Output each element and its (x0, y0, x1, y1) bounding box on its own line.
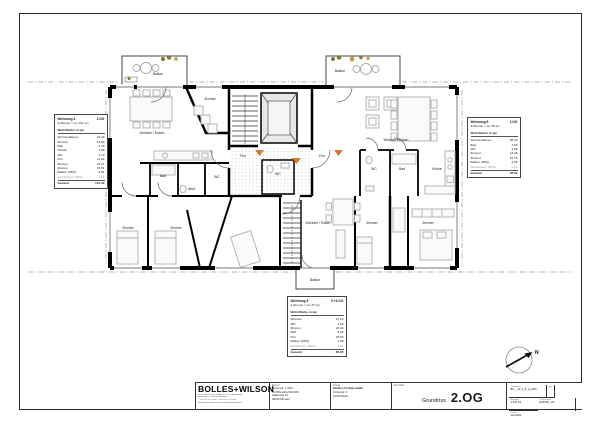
north-label: N (535, 350, 539, 356)
room-label: Zimmer (204, 97, 216, 101)
architect-address-line: info@bolles-wilson.com www.bolles-wilson… (198, 402, 267, 405)
room-label: Balkon (153, 72, 163, 76)
elevator-car (268, 101, 290, 135)
architect-logo: BOLLES+WILSON (198, 385, 267, 394)
room-label: Bad (399, 167, 405, 171)
unit-subtitle: 3-Zimmer ≈ ca. 101 qm (58, 121, 105, 125)
client-line: 48155 Münster (272, 398, 328, 402)
room-label: WC (214, 175, 220, 179)
plan-content-block: Planinhalt Grundriss 2.OG (392, 383, 507, 409)
room-label: Wohnen / Essen (384, 138, 409, 142)
room-label: Balkon (335, 69, 345, 73)
unit-subtitle: 3-Zimmer ≈ ca. 95 qm (471, 124, 518, 128)
unit-area-header: Wohnfläche in qm (58, 128, 105, 134)
unit-subtitle: 2-Zimmer ≈ ca. 87 qm (291, 303, 344, 307)
room-label: Abst. (188, 187, 196, 191)
room-label: Wohnen / Essen (306, 221, 331, 225)
project-line: 10783 Berlin (333, 395, 389, 399)
north-arrow: N (506, 347, 539, 373)
client-block: Bauherr Frobenstr. 1 GbR c/o BOLLES+WILS… (270, 383, 331, 409)
project-block: Projekt Studios Frobenstraße Frobenstr. … (331, 383, 392, 409)
unit-total-row: Gesamt86.85 (291, 349, 344, 355)
unit-area-header: Wohnfläche in qm (471, 131, 518, 137)
room-label: Zimmer (366, 221, 378, 225)
room-label: Flur (240, 154, 247, 158)
internal-stair-w5 (283, 200, 301, 268)
meta-filename: Dateiname BF_-_W_0_5_A_ARC (509, 385, 547, 398)
stair-core (232, 93, 297, 144)
meta-plan-number: Plannummer E02/021_A3 (538, 398, 576, 411)
unit-info-box-wohnung-5: Wohnung 52.+3.OG2-Zimmer ≈ ca. 87 qmWohn… (287, 296, 347, 357)
plan-content-header: Planinhalt (394, 385, 504, 388)
architect-block: BOLLES+WILSON BOLLES+WILSON GmbH & Co. K… (196, 383, 270, 409)
unit-info-box-wohnung-4: Wohnung 42.OG3-Zimmer ≈ ca. 101 qmWohnfl… (54, 114, 108, 189)
room-label: Bad (160, 174, 166, 178)
room-label: Zimmer (422, 221, 434, 225)
plan-floor-value: 2.OG (451, 390, 483, 405)
meta-date: Datum Juli 2020 (509, 411, 546, 424)
floor-plan-drawing: BalkonBalkonBalkonWohnen / EssenZimmerBa… (0, 0, 600, 424)
meta-drawn-by: gez. (547, 385, 555, 398)
room-label: WC (275, 172, 281, 176)
room-label: Wohnen / Essen (140, 131, 165, 135)
unit-area-header: Wohnfläche in qm (291, 310, 344, 316)
title-block: BOLLES+WILSON BOLLES+WILSON GmbH & Co. K… (195, 382, 582, 409)
room-label: Zimmer (122, 226, 134, 230)
unit-total-row: Gesamt101.40 (58, 180, 105, 186)
meta-grid: Dateiname BF_-_W_0_5_A_ARC gez. Maßstab … (507, 383, 582, 409)
plan-type-label: Grundriss (422, 398, 446, 404)
unit-area-row: Abstellraum (50%)1.24 (58, 175, 105, 179)
room-label: Zimmer (170, 226, 182, 230)
unit-area-row: Abstellraum (50%)1.24 (291, 344, 344, 348)
room-label: WC (371, 167, 377, 171)
unit-total-row: Gesamt95.82 (471, 170, 518, 176)
room-label: Küche (432, 167, 442, 171)
drawing-sheet: BalkonBalkonBalkonWohnen / EssenZimmerBa… (0, 0, 600, 424)
meta-scale: Maßstab 1:100 A3 (509, 398, 538, 411)
unit-info-box-wohnung-6: Wohnung 62.OG3-Zimmer ≈ ca. 95 qmWohnflä… (467, 117, 521, 178)
room-label: Balkon (310, 278, 320, 282)
unit-area-row: Abstellraum (50%)1.24 (471, 165, 518, 169)
room-label: Flur (319, 154, 326, 158)
balcony-furniture-right (353, 64, 379, 75)
